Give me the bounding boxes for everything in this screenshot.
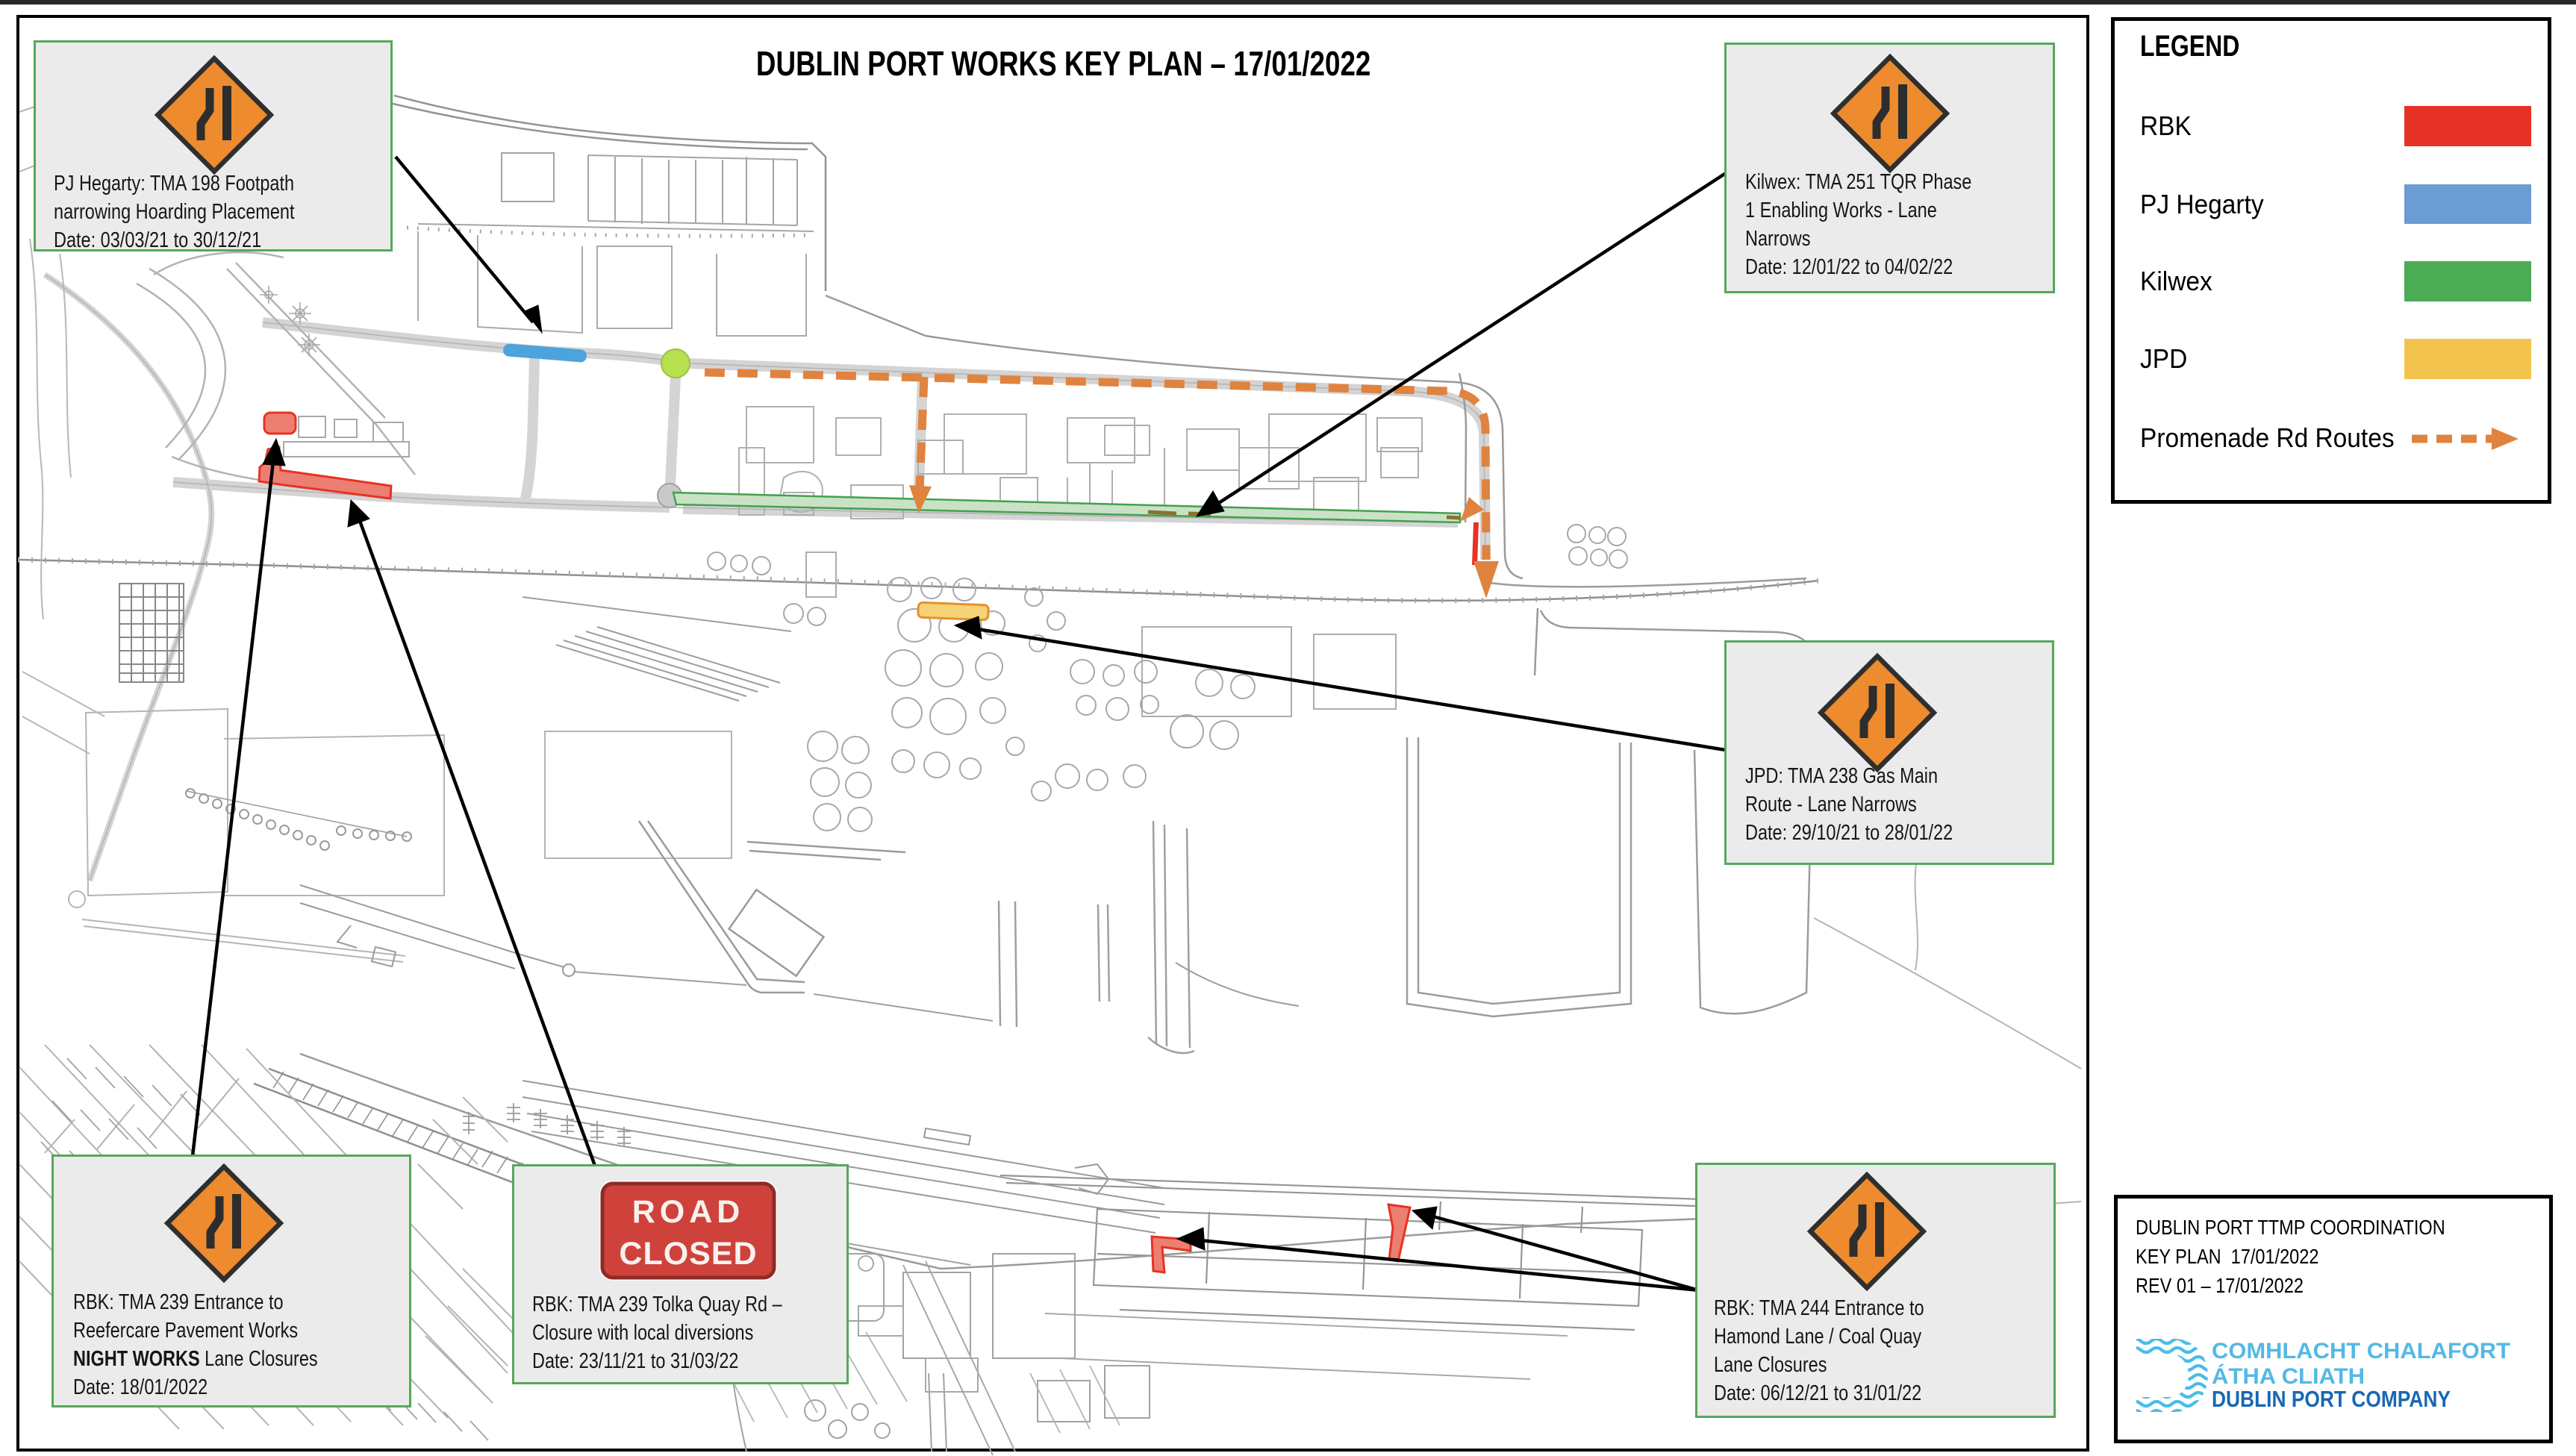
svg-text:COMHLACHT CHALAFORT: COMHLACHT CHALAFORT xyxy=(2212,1339,2510,1363)
svg-text:DUBLIN PORT COMPANY: DUBLIN PORT COMPANY xyxy=(2212,1386,2451,1412)
svg-text:ÁTHA CLIATH: ÁTHA CLIATH xyxy=(2212,1363,2365,1389)
